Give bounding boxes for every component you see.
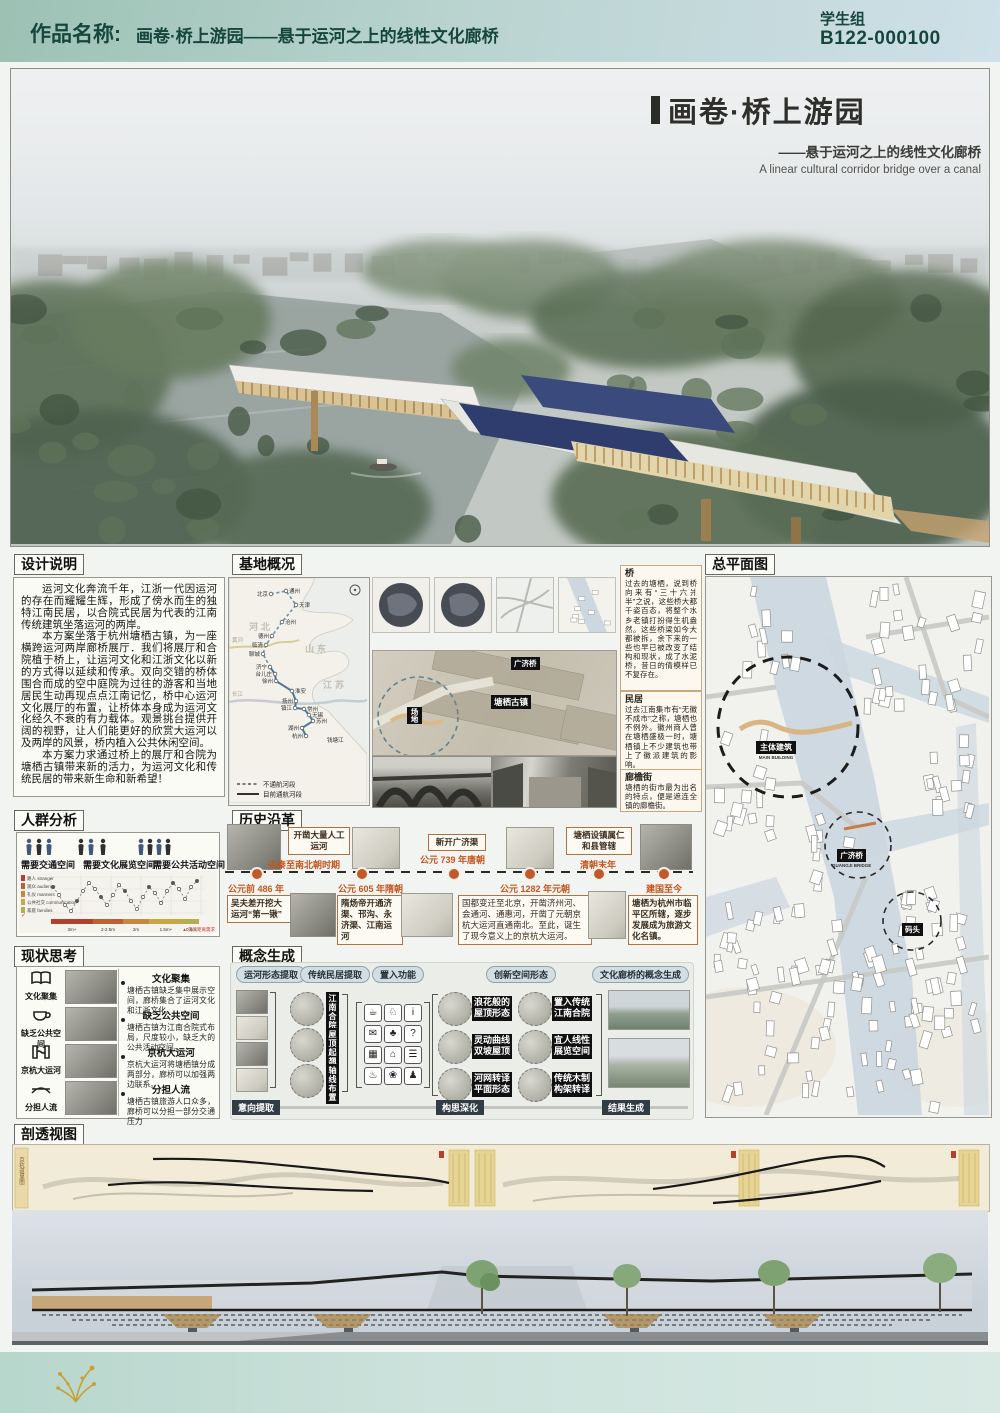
poster-page: 作品名称: 画卷·桥上游园——悬于运河之上的线性文化廊桥 学生组 B122-00… xyxy=(0,0,1000,1413)
scroll-painting: 京杭道里图 xyxy=(12,1144,990,1212)
history-event-date: 公元 1282 年元朝 xyxy=(500,882,570,895)
street-photo xyxy=(492,756,617,808)
crowd-row-label: 路人 stranger xyxy=(27,875,54,882)
svg-text:山东: 山东 xyxy=(305,643,329,654)
map-city-label: 天津 xyxy=(299,602,311,609)
history-map-1 xyxy=(352,827,400,869)
person-icon xyxy=(88,839,93,855)
map-city-label: 常州 xyxy=(307,705,318,713)
history-map xyxy=(588,891,626,939)
svg-text:黄河: 黄河 xyxy=(232,636,244,644)
hero-rendering: 画卷·桥上游园 ——悬于运河之上的线性文化廊桥 A linear cultura… xyxy=(10,68,990,547)
function-icon: i xyxy=(404,1004,422,1022)
map-city-label: 徐州 xyxy=(262,677,273,685)
history-map-2 xyxy=(506,827,554,869)
crowd-analysis-title: 人群分析 xyxy=(14,810,84,831)
bracket xyxy=(270,992,276,1088)
thinking-item-label: 京杭大运河 xyxy=(21,1065,61,1076)
main-building-label: 主体建筑 MAIN BUILDING xyxy=(756,737,796,760)
history-event-date: 建国至今 xyxy=(646,882,682,895)
hero-subtitle: ——悬于运河之上的线性文化廊桥 xyxy=(651,141,981,161)
extract-label: 屋顶起翘 xyxy=(326,1028,339,1068)
map-city-label: 济宁 xyxy=(256,663,268,671)
person-icon xyxy=(147,839,152,855)
innov-circle xyxy=(518,1068,552,1102)
pill-dwelling: 传统民居提取 xyxy=(300,966,370,983)
canal-icon: 京杭大运河 xyxy=(21,1043,61,1077)
thinking-item-text: 分担人流塘栖古镇旅游人口众多，廊桥可以分担一部分交通压力 xyxy=(127,1080,215,1127)
function-icon: ⌂ xyxy=(384,1046,402,1064)
map-city-label: 淮安 xyxy=(295,687,307,695)
note-dwellings: 民居过去江南集市有“无徽不成市”之称，塘栖也不例外。徽州商人曾在塘栖盛极一时，塘… xyxy=(620,691,702,771)
satellite-town-label: 塘栖古镇 xyxy=(491,695,531,709)
person-icon xyxy=(78,839,83,855)
teacup-icon: 缺乏公共空间 xyxy=(21,1006,61,1040)
innov-circle xyxy=(518,992,552,1026)
entry-code: B122-000100 xyxy=(820,28,941,50)
function-icon: ♟ xyxy=(404,1067,422,1085)
innov-circle xyxy=(518,1030,552,1064)
location-thumbs: 中国浙江省杭州市塘栖镇 xyxy=(372,577,615,647)
people-icons xyxy=(19,835,219,857)
map-city-label: 沧州 xyxy=(285,618,296,626)
history-map xyxy=(401,893,453,937)
crowd-row-label: 礼仪 manners xyxy=(27,891,56,898)
bridge-icon: 分担人流 xyxy=(21,1080,61,1114)
history-photo xyxy=(290,893,336,937)
map-city-label: 杭州 xyxy=(292,732,303,740)
map-city-label: 临清 xyxy=(252,641,264,649)
current-thinking-title: 现状思考 xyxy=(14,946,84,967)
phase-develop: 构思深化 xyxy=(436,1100,484,1115)
crowd-row-label: 公共社交 communication xyxy=(27,899,77,906)
svg-text:1.5m+: 1.5m+ xyxy=(160,927,173,932)
function-icon: ▦ xyxy=(364,1046,382,1064)
pill-space-form: 创新空间形态 xyxy=(486,966,556,983)
map-city-label: 扬州 xyxy=(282,697,293,705)
timeline-dot xyxy=(355,867,369,881)
function-icon: ? xyxy=(404,1025,422,1043)
innov-label: 宜人线性 展览空间 xyxy=(552,1034,592,1059)
need-culture-label: 需要文化展览空间 xyxy=(83,858,155,871)
timeline-dot xyxy=(523,867,537,881)
map-city-label: 苏州 xyxy=(316,717,327,725)
history-event-box: 塘栖为杭州市临平区所辖，逐步发展成为旅游文化名镇。 xyxy=(628,895,698,945)
thumb-0: 中国 xyxy=(372,577,430,633)
thinking-photo xyxy=(65,970,117,1004)
ref-photo xyxy=(236,990,268,1014)
book-icon: 文化聚集 xyxy=(21,969,61,1003)
dock-label: 码头 xyxy=(902,923,923,936)
extract-label: 江南合院 xyxy=(326,992,339,1032)
map-city-label: 湖州 xyxy=(288,724,299,732)
thumb-2: 杭州市 xyxy=(496,577,554,633)
design-statement-title: 设计说明 xyxy=(14,554,84,575)
extract-circle xyxy=(290,1064,324,1098)
svg-text:江苏: 江苏 xyxy=(323,679,347,690)
person-icon xyxy=(138,839,143,855)
ref-photo xyxy=(236,1042,268,1066)
function-icon: ♨ xyxy=(364,1067,382,1085)
thumb-3: 塘栖镇 xyxy=(558,577,616,633)
hero-title: 画卷·桥上游园 xyxy=(668,89,866,131)
function-icon: ✉ xyxy=(364,1025,382,1043)
bracket xyxy=(596,994,602,1096)
extract-circle xyxy=(290,1028,324,1062)
pill-function: 置入功能 xyxy=(372,966,424,983)
history-event-box: 塘栖设镇属仁和县管辖 xyxy=(566,827,632,855)
history-event-date: 公元 739 年唐朝 xyxy=(420,853,485,866)
timeline-dot xyxy=(447,867,461,881)
work-name-label: 作品名称: xyxy=(30,18,121,48)
site-overview-title: 基地概况 xyxy=(232,554,302,575)
crowd-analysis-panel: 需要交通空间 需要文化展览空间 需要公共活动空间 路人 stranger观众 a… xyxy=(16,832,220,937)
result-render-1 xyxy=(608,990,690,1030)
svg-text:2-2.5m: 2-2.5m xyxy=(101,927,115,932)
bullet-dot xyxy=(121,981,125,985)
note-arcade-street: 廊檐街塘栖的街市最为出名的特点，便是遮连全镇的廊檐街。 xyxy=(620,769,702,812)
ref-photo xyxy=(236,1068,268,1092)
svg-text:▲ 交流距离需求: ▲ 交流距离需求 xyxy=(182,926,215,933)
function-icon: ☕ xyxy=(364,1004,382,1022)
master-plan-map: 主体建筑 MAIN BUILDING 广济桥 GUANGJI BRIDGE 码头 xyxy=(705,576,992,1118)
history-event-box: 新开广济渠 xyxy=(428,834,486,851)
person-icon xyxy=(26,839,31,855)
timeline-dot xyxy=(657,867,671,881)
design-statement-text: 运河文化奔流千年，江浙一代因运河的存在而耀耀生辉，形成了傍水而生的独特江南民居，… xyxy=(13,577,225,797)
phase-extract: 意向提取 xyxy=(232,1100,280,1115)
function-icon: ♣ xyxy=(384,1025,402,1043)
bullet-dot xyxy=(121,1055,125,1059)
current-thinking-panel: 文化聚集文化聚集塘栖古镇缺乏集中展示空间，廊桥集合了运河文化和江浙文化。缺乏公共… xyxy=(16,966,220,1119)
crowd-row-label: 家庭 families xyxy=(27,907,53,914)
innov-label: 传统木制 构架转译 xyxy=(552,1072,592,1097)
work-title: 画卷·桥上游园——悬于运河之上的线性文化廊桥 xyxy=(136,22,499,47)
bracket xyxy=(424,1002,430,1088)
function-icon: ❀ xyxy=(384,1067,402,1085)
extract-label: 轴线布置 xyxy=(326,1064,339,1104)
thinking-photo xyxy=(65,1007,117,1041)
person-icon xyxy=(36,839,41,855)
svg-text:2m: 2m xyxy=(133,927,140,932)
bracket xyxy=(356,1002,362,1088)
entry-group: 学生组 xyxy=(820,8,865,29)
thinking-item-label: 分担人流 xyxy=(21,1102,61,1113)
bridge-elevation-render xyxy=(12,1210,988,1345)
function-icon: ☰ xyxy=(404,1046,422,1064)
map-city-label: 聊城 xyxy=(249,650,261,658)
pill-concept-result: 文化廊桥的概念生成 xyxy=(592,966,689,983)
thinking-item-label: 文化聚集 xyxy=(21,991,61,1002)
person-icon xyxy=(100,839,105,855)
history-event-box: 隋炀帝开通济渠、邗沟、永济渠、江南运河 xyxy=(337,895,403,945)
innov-circle xyxy=(438,1068,472,1102)
zijin-award-logo xyxy=(52,1358,100,1406)
history-event-box: 国都变迁至北京，开凿济州河、会通河、通惠河，开凿了元朝京杭大运河直通南北。至此，… xyxy=(458,895,592,945)
svg-text:✓: ✓ xyxy=(21,913,26,919)
person-icon xyxy=(46,839,51,855)
map-city-label: 无锡 xyxy=(312,711,324,719)
ref-photo xyxy=(236,1016,268,1040)
bullet-dot xyxy=(121,1018,125,1022)
svg-text:不通航河段: 不通航河段 xyxy=(263,780,296,789)
thinking-photo xyxy=(65,1081,117,1115)
title-bar-mark xyxy=(651,96,660,124)
svg-text:长江: 长江 xyxy=(232,690,244,698)
bullet-dot xyxy=(121,1092,125,1096)
innov-label: 灵动曲线 双坡屋顶 xyxy=(472,1034,512,1059)
thinking-photo xyxy=(65,1044,117,1078)
map-city-label: 钱塘江 xyxy=(327,736,344,744)
history-event-date: 先秦至南北朝时期 xyxy=(268,858,340,871)
timeline-dot xyxy=(250,867,264,881)
history-event-date: 公元 605 年隋朝 xyxy=(338,882,403,895)
bracket xyxy=(342,994,348,1092)
extract-circle xyxy=(290,992,324,1026)
map-city-label: 镇江 xyxy=(281,704,293,712)
innov-circle xyxy=(438,1030,472,1064)
footer-band: 2022 第九届 紫金奖·建筑及环境设计大赛 The 9th "Zijin Aw… xyxy=(0,1352,1000,1413)
note-bridge: 桥过去的塘栖，说到桥向来有“三十六爿半”之说，这些桥大都千姿百态，将整个水乡老镇… xyxy=(620,565,702,691)
guangji-bridge-label: 广济桥 GUANGJI BRIDGE xyxy=(832,845,871,868)
canal-map: 河北山东江苏黄河长江北京通州天津沧州德州临清聊城济宁台儿庄徐州淮安扬州镇江常州无… xyxy=(228,577,370,806)
svg-text:3m+: 3m+ xyxy=(68,927,77,932)
innov-circle xyxy=(438,992,472,1026)
section-view-title: 剖透视图 xyxy=(14,1124,84,1145)
function-icon: ♘ xyxy=(384,1004,402,1022)
divider xyxy=(118,969,119,1116)
pill-canal-form: 运河形态提取 xyxy=(236,966,306,983)
history-event-box: 吴夫差开挖大运河“第一锹” xyxy=(227,895,291,923)
timeline-dot xyxy=(592,867,606,881)
history-event-date: 公元前 486 年 xyxy=(228,882,284,895)
result-render-2 xyxy=(608,1038,690,1088)
map-city-label: 北京 xyxy=(257,590,269,598)
satellite-image: 广济桥 塘栖古镇 场地 xyxy=(372,650,617,756)
innov-label: 浪花般的 屋顶形态 xyxy=(472,996,512,1021)
satellite-bridge-label: 广济桥 xyxy=(511,657,540,670)
map-city-label: 台儿庄 xyxy=(255,670,272,678)
scroll-title-label: 京杭道里图 xyxy=(18,1156,25,1186)
need-public-label: 需要公共活动空间 xyxy=(153,858,225,871)
history-photo-town xyxy=(640,824,692,870)
crowd-distance-chart: 路人 stranger观众 audience礼仪 manners公共社交 com… xyxy=(19,871,217,933)
hero-title-block: 画卷·桥上游园 ——悬于运河之上的线性文化廊桥 A linear cultura… xyxy=(651,89,981,176)
svg-text:河北: 河北 xyxy=(249,621,273,632)
innov-label: 河网转译 平面形态 xyxy=(472,1072,512,1097)
need-traffic-label: 需要交通空间 xyxy=(21,858,75,871)
svg-text:目前通航河段: 目前通航河段 xyxy=(263,790,303,799)
history-event-box: 开凿大量人工运河 xyxy=(288,827,350,855)
satellite-site-label: 场地 xyxy=(407,707,422,724)
map-city-label: 德州 xyxy=(258,632,269,640)
thumb-1: 浙江省 xyxy=(434,577,492,633)
guangji-bridge-photo xyxy=(372,756,492,808)
header-band: 作品名称: 画卷·桥上游园——悬于运河之上的线性文化廊桥 学生组 B122-00… xyxy=(0,0,1000,62)
person-icon xyxy=(165,839,170,855)
innov-label: 置入传统 江南合院 xyxy=(552,996,592,1021)
person-icon xyxy=(156,839,161,855)
phase-result: 结果生成 xyxy=(602,1100,650,1115)
hero-subtitle-en: A linear cultural corridor bridge over a… xyxy=(651,164,981,176)
master-plan-title: 总平面图 xyxy=(705,554,775,575)
map-city-label: 通州 xyxy=(289,587,300,595)
